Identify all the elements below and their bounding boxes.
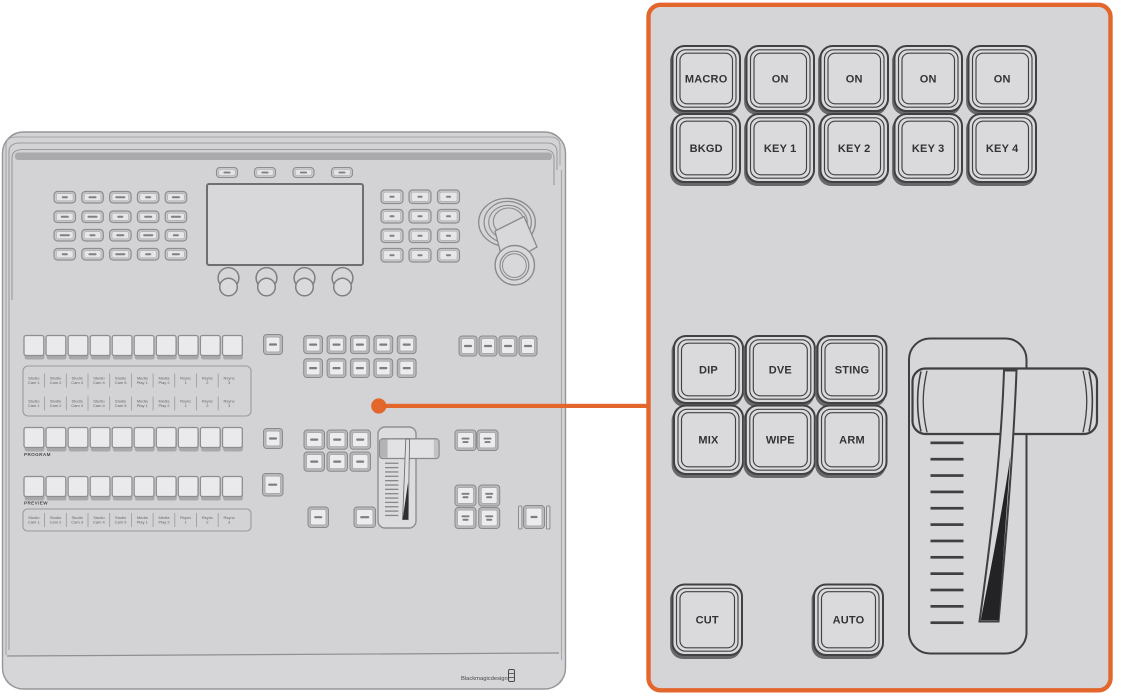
svg-text:WIPE: WIPE bbox=[766, 435, 795, 447]
svg-text:ON: ON bbox=[846, 73, 863, 85]
svg-text:Play 1: Play 1 bbox=[137, 380, 149, 385]
svg-text:Cam 4: Cam 4 bbox=[93, 380, 106, 385]
svg-text:Cam 3: Cam 3 bbox=[71, 520, 84, 525]
svg-text:Cam 4: Cam 4 bbox=[93, 403, 106, 408]
svg-text:Cam 1: Cam 1 bbox=[28, 403, 41, 408]
svg-text:ON: ON bbox=[994, 73, 1011, 85]
svg-text:KEY 4: KEY 4 bbox=[986, 143, 1019, 155]
svg-text:Play 2: Play 2 bbox=[158, 403, 170, 408]
svg-text:Play 1: Play 1 bbox=[137, 403, 149, 408]
svg-text:Play 2: Play 2 bbox=[158, 520, 170, 525]
svg-text:Play 1: Play 1 bbox=[137, 520, 149, 525]
svg-text:Cam 5: Cam 5 bbox=[115, 520, 128, 525]
svg-text:MIX: MIX bbox=[698, 435, 719, 447]
svg-text:Cam 4: Cam 4 bbox=[93, 520, 106, 525]
svg-text:PREVIEW: PREVIEW bbox=[24, 501, 48, 506]
svg-text:Play 2: Play 2 bbox=[158, 380, 170, 385]
svg-text:BKGD: BKGD bbox=[690, 143, 723, 155]
svg-text:Cam 3: Cam 3 bbox=[71, 380, 84, 385]
svg-text:Cam 1: Cam 1 bbox=[28, 380, 41, 385]
svg-text:ON: ON bbox=[772, 73, 789, 85]
svg-text:DVE: DVE bbox=[769, 364, 792, 376]
svg-text:AUTO: AUTO bbox=[833, 615, 865, 627]
svg-text:Cam 2: Cam 2 bbox=[50, 520, 63, 525]
svg-text:STING: STING bbox=[835, 364, 870, 376]
svg-text:CUT: CUT bbox=[696, 615, 719, 627]
svg-text:MACRO: MACRO bbox=[685, 73, 728, 85]
svg-text:PROGRAM: PROGRAM bbox=[24, 452, 51, 457]
svg-text:Cam 3: Cam 3 bbox=[71, 403, 84, 408]
svg-text:KEY 3: KEY 3 bbox=[912, 143, 945, 155]
svg-text:Cam 2: Cam 2 bbox=[50, 380, 63, 385]
svg-text:Cam 2: Cam 2 bbox=[50, 403, 63, 408]
svg-text:Cam 5: Cam 5 bbox=[115, 403, 128, 408]
svg-text:ARM: ARM bbox=[839, 435, 865, 447]
svg-text:KEY 1: KEY 1 bbox=[764, 143, 797, 155]
svg-text:Blackmagicdesign: Blackmagicdesign bbox=[461, 676, 508, 682]
svg-text:KEY 2: KEY 2 bbox=[838, 143, 871, 155]
svg-text:Cam 5: Cam 5 bbox=[115, 380, 128, 385]
svg-text:DIP: DIP bbox=[699, 364, 718, 376]
svg-text:ON: ON bbox=[920, 73, 937, 85]
svg-text:Cam 1: Cam 1 bbox=[28, 520, 41, 525]
